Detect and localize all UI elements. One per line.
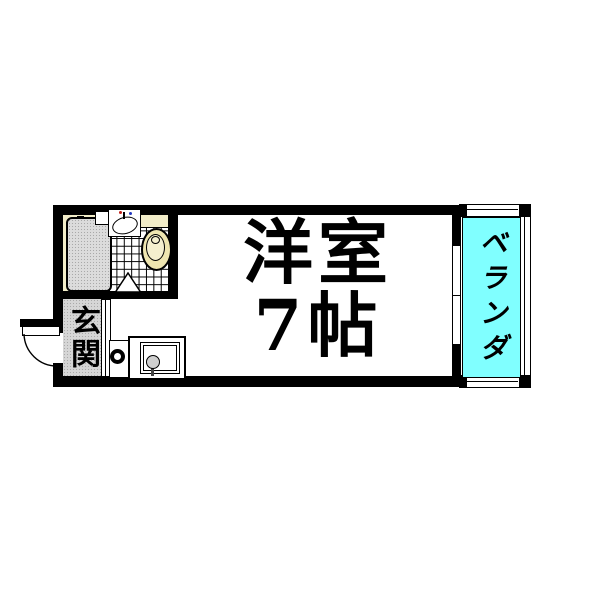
veranda-post-top-right <box>519 204 531 217</box>
cold-tap-dot <box>129 212 132 215</box>
washbasin-tap <box>123 212 125 219</box>
toilet-tank <box>139 215 168 228</box>
stove-burner-icon <box>110 349 125 364</box>
washbasin-icon <box>108 209 141 237</box>
bathtub-icon <box>66 217 112 292</box>
washbasin-bowl <box>110 214 140 237</box>
main-room-label: 洋室 7帖 <box>228 216 408 368</box>
toilet-flush-cap <box>151 236 160 244</box>
floor-plan: 玄関 洋室 7帖 ベランダ <box>0 0 600 600</box>
veranda-post-top-left <box>459 204 467 217</box>
hot-tap-dot <box>119 211 122 214</box>
room-size-text: 7帖 <box>228 289 408 362</box>
veranda-label: ベランダ <box>478 228 506 368</box>
veranda-railing-top <box>459 204 520 217</box>
sliding-window-icon <box>452 245 461 345</box>
wc-door-swing-icon <box>114 272 142 293</box>
entrance-door-swing-arc <box>23 334 58 367</box>
outer-wall-left-upper <box>53 205 63 333</box>
entrance-label: 玄関 <box>67 305 97 371</box>
room-name-text: 洋室 <box>228 216 408 289</box>
bath-faucet-icon <box>77 216 84 219</box>
entrance-area: 玄関 <box>63 299 101 376</box>
veranda-area: ベランダ <box>462 217 521 378</box>
sink-faucet-icon <box>146 355 160 369</box>
